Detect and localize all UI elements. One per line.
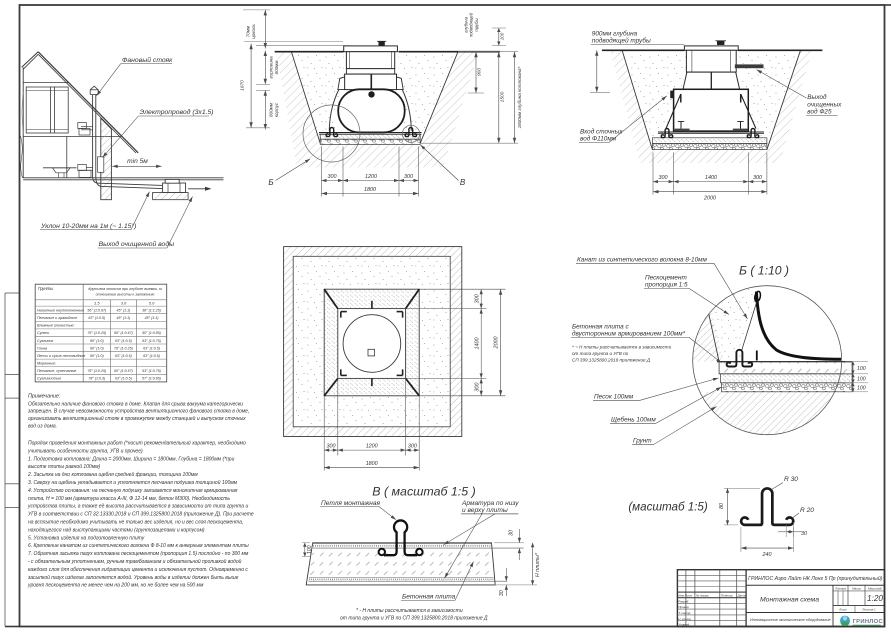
svg-text:63° (1:0.5): 63° (1:0.5) (143, 354, 160, 358)
svg-text:7. Обратная засыпка пазух котл: 7. Обратная засыпка пазух котлована песк… (28, 550, 249, 557)
svg-text:Песчаные и гравийные: Песчаные и гравийные (37, 316, 77, 320)
svg-text:Литера: Литера (834, 587, 846, 591)
svg-text:В: В (460, 178, 466, 187)
svg-text:- с обязательным уплотнением,: - с обязательным уплотнением, ручным тра… (28, 558, 242, 565)
svg-text:от типа грунта и УГВ по: от типа грунта и УГВ по (572, 351, 629, 356)
svg-text:Суглинок: Суглинок (37, 339, 53, 343)
svg-text:Электропровод (3х1.5): Электропровод (3х1.5) (140, 108, 214, 116)
svg-text:Утверд.: Утверд. (678, 623, 690, 627)
svg-text:подводящей трубы: подводящей трубы (592, 37, 651, 45)
svg-text:на всплытие необходимо учитыв: на всплытие необходимо учитывать не толь… (28, 520, 243, 526)
svg-text:горловина: горловина (269, 56, 274, 79)
svg-text:56° (1:0.67): 56° (1:0.67) (87, 309, 106, 313)
svg-text:Порядок проведения монтажных р: Порядок проведения монтажных работ (*нос… (28, 440, 246, 447)
svg-text:80: 80 (719, 503, 725, 509)
svg-text:56° (1:0.67): 56° (1:0.67) (114, 331, 133, 335)
svg-text:2000: 2000 (703, 196, 716, 202)
svg-text:плита, Н = 100 мм (арматура кл: плита, Н = 100 мм (арматура класса А-III… (28, 496, 230, 502)
svg-text:1200: 1200 (366, 443, 378, 449)
svg-text:45° (1:1): 45° (1:1) (117, 316, 131, 320)
svg-text:70мм: 70мм (246, 25, 251, 37)
svg-text:Насыпные неуплотненные: Насыпные неуплотненные (37, 309, 84, 313)
svg-text:Грунт: Грунт (633, 438, 652, 445)
svg-text:Глина: Глина (37, 346, 47, 350)
svg-text:Пескоцемент: Пескоцемент (645, 274, 687, 281)
svg-text:* ~ Н плиты рассчитывается в з: * ~ Н плиты рассчитывается в зависимости (572, 344, 672, 349)
svg-text:В ( масштаб 1:5 ): В ( масштаб 1:5 ) (372, 485, 475, 499)
svg-text:корпус: корпус (274, 102, 279, 117)
svg-text:Супесь: Супесь (37, 331, 49, 335)
svg-text:76° (1:0.25): 76° (1:0.25) (87, 331, 106, 335)
svg-text:от типа грунта и УГВ по СП 399: от типа грунта и УГВ по СП 399.1325800.2… (340, 615, 488, 621)
svg-text:Бетонная плита: Бетонная плита (402, 594, 456, 601)
svg-text:отношение высоты к заложению: отношение высоты к заложению (96, 293, 155, 297)
svg-text:Примечание:: Примечание: (28, 394, 61, 400)
svg-text:63° (1:0.5): 63° (1:0.5) (143, 346, 160, 350)
svg-text:1800мм глубина котлована*: 1800мм глубина котлована* (517, 66, 522, 128)
svg-text:Выход: Выход (807, 93, 827, 101)
svg-text:Провер.: Провер. (678, 605, 689, 609)
svg-text:Бетонная плита с: Бетонная плита с (572, 323, 629, 330)
svg-text:Моренные:: Моренные: (37, 362, 56, 366)
svg-text:63° (1:0.5): 63° (1:0.5) (115, 339, 132, 343)
svg-text:R 30: R 30 (784, 476, 798, 483)
svg-text:300: 300 (404, 174, 413, 180)
svg-text:2. Засыпка на дно котлована ще: 2. Засыпка на дно котлована щебня средне… (27, 471, 198, 478)
svg-text:76° (1:0.25): 76° (1:0.25) (87, 369, 106, 373)
svg-text:Грунты: Грунты (38, 286, 53, 291)
svg-text:Б ( 1:10 ): Б ( 1:10 ) (739, 264, 789, 278)
svg-text:Лессы и сухие лессовидные: Лессы и сухие лессовидные (36, 354, 85, 358)
svg-text:1800: 1800 (364, 187, 376, 193)
svg-text:Арматура по низу: Арматура по низу (461, 500, 519, 507)
svg-text:устройства плиты, а также её в: устройства плиты, а также её высота расс… (27, 503, 248, 510)
svg-text:900: 900 (477, 68, 483, 76)
svg-text:каждого слоя для обеспечения г: каждого слоя для обеспечения гидратации … (28, 567, 248, 573)
svg-text:уровня пескоцемента не менее ч: уровня пескоцемента не менее чем на 200 … (27, 583, 204, 589)
svg-text:53° (1:0.75): 53° (1:0.75) (142, 369, 161, 373)
svg-text:300: 300 (474, 294, 480, 303)
svg-text:5.0: 5.0 (149, 300, 155, 305)
svg-text:63° (1:0.5): 63° (1:0.5) (115, 354, 132, 358)
svg-text:Подпись: Подпись (721, 594, 733, 598)
svg-text:Суглинистые: Суглинистые (37, 377, 61, 381)
svg-text:Вход сточных: Вход сточных (580, 127, 623, 135)
svg-text:организовать вентиляционный ст: организовать вентиляционный стояк в пром… (28, 415, 246, 422)
svg-text:600мм: 600мм (274, 60, 279, 75)
svg-text:очищенных: очищенных (807, 101, 842, 108)
svg-text:300: 300 (659, 175, 668, 181)
svg-text:30: 30 (509, 530, 515, 536)
svg-text:800мм: 800мм (269, 102, 274, 117)
svg-text:1. Подготовка котлована: Длина: 1. Подготовка котлована: Длина = 2000мм,… (28, 456, 235, 462)
svg-text:Б: Б (268, 178, 273, 187)
svg-text:Листов 1: Листов 1 (861, 608, 876, 612)
svg-text:53° (1:0.75): 53° (1:0.75) (142, 339, 161, 343)
svg-text:78° (1:0.3): 78° (1:0.3) (88, 377, 105, 381)
svg-text:1670: 1670 (240, 80, 246, 91)
svg-text:Уклон 10-20мм на 1м (~ 1.15°): Уклон 10-20мм на 1м (~ 1.15°) (40, 222, 136, 230)
svg-text:пропорция 1:5: пропорция 1:5 (645, 282, 688, 289)
svg-text:45° (1:1): 45° (1:1) (145, 316, 159, 320)
svg-text:63° (1:0.5): 63° (1:0.5) (115, 377, 132, 381)
svg-text:Влажные глинистые:: Влажные глинистые: (37, 324, 75, 328)
svg-text:5. Установка изделия на подгот: 5. Установка изделия на подготовленную п… (28, 535, 145, 541)
svg-text:30: 30 (499, 590, 505, 596)
svg-text:1500: 1500 (500, 91, 506, 102)
svg-text:ГРИНЛОС: ГРИНЛОС (853, 619, 884, 625)
svg-text:300: 300 (753, 175, 762, 181)
svg-text:1200: 1200 (365, 174, 377, 180)
svg-text:63° (1:0.5): 63° (1:0.5) (88, 316, 105, 320)
svg-text:Крутизна откосов при глубине в: Крутизна откосов при глубине выемки, м (88, 287, 162, 291)
svg-text:Изм.Лист: Изм.Лист (678, 594, 693, 598)
svg-text:45° (1:1): 45° (1:1) (117, 309, 131, 313)
svg-text:1400: 1400 (474, 338, 480, 350)
svg-text:(масштаб 1:5): (масштаб 1:5) (628, 501, 708, 514)
svg-text:Т. контр.: Т. контр. (678, 611, 691, 615)
svg-text:вод Ф110мм: вод Ф110мм (580, 135, 617, 143)
svg-text:Выход очищенной воды: Выход очищенной воды (99, 240, 175, 248)
svg-text:76° (1:0.25): 76° (1:0.25) (114, 346, 133, 350)
svg-text:30: 30 (801, 531, 807, 537)
svg-text:Фановый стояк: Фановый стояк (122, 56, 173, 64)
svg-text:6. Крепление канатом из синтет: 6. Крепление канатом из синтетического в… (28, 543, 249, 549)
svg-text:и верху плиты: и верху плиты (462, 507, 508, 514)
svg-text:Песчаные, супесчаные: Песчаные, супесчаные (37, 369, 76, 373)
svg-text:№ докум.: № докум. (696, 594, 709, 598)
svg-text:ГРИНЛОС Аэро Лайт НК Лонг 5 П: ГРИНЛОС Аэро Лайт НК Лонг 5 Пр (принудит… (748, 575, 883, 582)
svg-text:300: 300 (327, 443, 336, 449)
svg-text:Песок 100мм: Песок 100мм (594, 394, 634, 401)
svg-text:3. Сверху на щебень укладывает: 3. Сверху на щебень укладывается и уплот… (28, 479, 238, 486)
svg-text:100: 100 (857, 385, 866, 391)
svg-text:цоколь: цоколь (251, 24, 256, 39)
svg-text:запрещен. В случае невозможнос: запрещен. В случае невозможности устройс… (27, 408, 249, 415)
svg-text:Монтажная схема: Монтажная схема (760, 597, 819, 604)
svg-text:Канат из синтетического волокн: Канат из синтетического волокна 8-10мм (577, 257, 708, 264)
svg-text:учитывать особенности грунта,: учитывать особенности грунта, УГВ и проч… (27, 448, 143, 454)
svg-text:300: 300 (408, 443, 417, 449)
svg-text:Щебень 100мм: Щебень 100мм (611, 416, 656, 424)
svg-text:90° (1:0): 90° (1:0) (90, 354, 104, 358)
svg-text:4. Устройство основания: на пе: 4. Устройство основания: на песчаную под… (28, 487, 238, 494)
svg-text:высоте плиты равной 100мм): высоте плиты равной 100мм) (28, 463, 101, 470)
svg-text:* - Н плиты рассчитывается в з: * - Н плиты рассчитывается в зависимости (356, 608, 463, 614)
svg-text:Н. контр.: Н. контр. (678, 617, 692, 621)
svg-text:100: 100 (857, 376, 866, 382)
svg-text:1400: 1400 (705, 175, 717, 181)
svg-text:Инновационное экологическое об: Инновационное экологическое оборудование (750, 618, 831, 622)
svg-text:Н плиты*: Н плиты* (535, 552, 541, 577)
svg-text:2000: 2000 (494, 337, 500, 350)
svg-text:60° (1:0.57): 60° (1:0.57) (114, 369, 133, 373)
svg-text:вод Ф25: вод Ф25 (807, 108, 832, 116)
svg-text:СП 399.1325800.2018 приложение: СП 399.1325800.2018 приложение Д (572, 357, 651, 362)
svg-text:100: 100 (500, 32, 505, 40)
svg-text:трубы: трубы (474, 18, 479, 31)
svg-text:1.5: 1.5 (94, 300, 100, 305)
svg-text:1800: 1800 (366, 461, 378, 467)
svg-text:100: 100 (307, 545, 313, 554)
svg-text:900мм глубина: 900мм глубина (592, 29, 638, 37)
svg-text:Обязательно наличие фанового с: Обязательно наличие фанового стояка в до… (28, 401, 243, 407)
svg-text:УГВ в соответствии с СП 32.133: УГВ в соответствии с СП 32.13330.2018 и … (28, 512, 254, 518)
svg-text:3.0: 3.0 (121, 300, 127, 305)
svg-text:Разраб.: Разраб. (678, 599, 689, 603)
svg-text:min 5м: min 5м (127, 158, 148, 165)
svg-text:Масса: Масса (852, 587, 861, 591)
svg-text:90° (1:0): 90° (1:0) (90, 339, 104, 343)
svg-text:двусторонним армированием 100м: двусторонним армированием 100мм* (572, 330, 686, 338)
svg-text:300: 300 (328, 174, 337, 180)
svg-text:300: 300 (474, 383, 480, 392)
svg-text:вод из дома.: вод из дома. (28, 424, 57, 430)
svg-text:100: 100 (857, 366, 866, 372)
svg-text:240: 240 (762, 552, 772, 558)
svg-text:90° (1:0): 90° (1:0) (90, 346, 104, 350)
svg-text:находящегося над выступающими: находящегося над выступающими частями (г… (28, 527, 205, 533)
svg-text:1:20: 1:20 (867, 594, 883, 603)
svg-text:Петля монтажная: Петля монтажная (321, 500, 381, 507)
svg-text:38° (1:1.25): 38° (1:1.25) (142, 309, 161, 313)
svg-text:Лист: Лист (838, 608, 847, 612)
svg-text:засыпкой пазух изделие заполня: засыпкой пазух изделие заполняется водой… (27, 574, 239, 581)
svg-text:R 20: R 20 (800, 507, 814, 514)
svg-text:57° (1:0.65): 57° (1:0.65) (142, 377, 161, 381)
svg-text:50° (1:0.85): 50° (1:0.85) (142, 331, 161, 335)
svg-text:Дата: Дата (737, 594, 746, 598)
svg-text:Масштаб: Масштаб (868, 587, 882, 591)
